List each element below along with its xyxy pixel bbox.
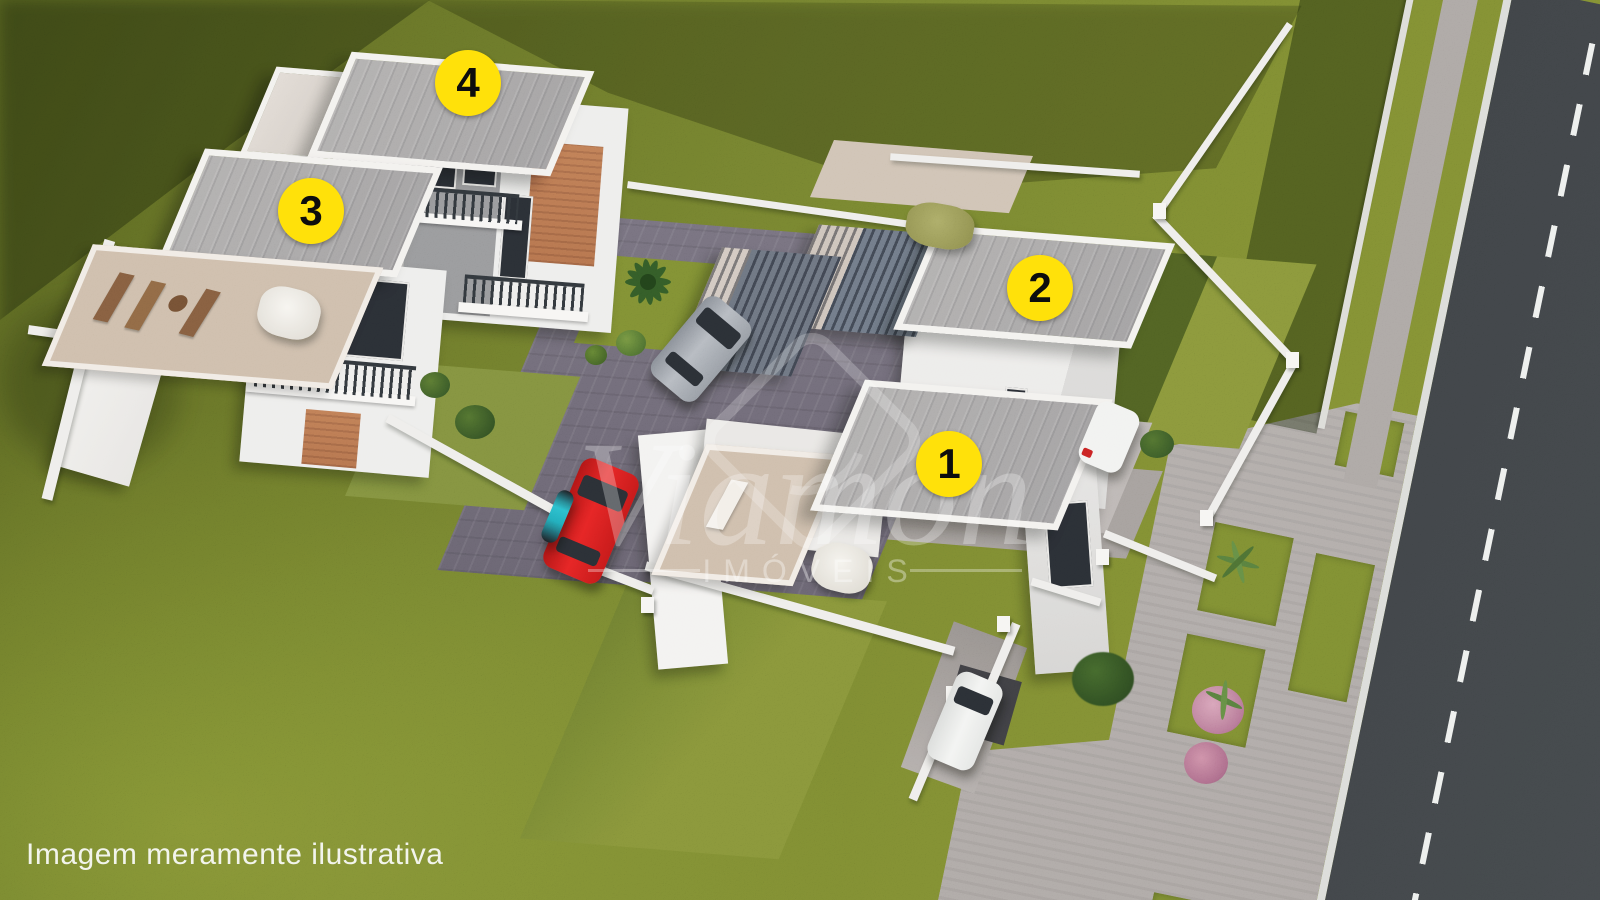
grain-overlay — [0, 0, 1600, 900]
unit-marker-1: 1 — [916, 431, 982, 497]
unit-marker-1-label: 1 — [937, 440, 960, 488]
unit-marker-2-label: 2 — [1028, 264, 1051, 312]
aerial-render-scene: Viamon IMÓVEIS 1 2 3 4 Imagem meramente … — [0, 0, 1600, 900]
unit-marker-3: 3 — [278, 178, 344, 244]
unit-marker-2: 2 — [1007, 255, 1073, 321]
unit-marker-4: 4 — [435, 50, 501, 116]
unit-marker-3-label: 3 — [299, 187, 322, 235]
unit-marker-4-label: 4 — [456, 59, 479, 107]
disclaimer-caption: Imagem meramente ilustrativa — [26, 838, 443, 872]
